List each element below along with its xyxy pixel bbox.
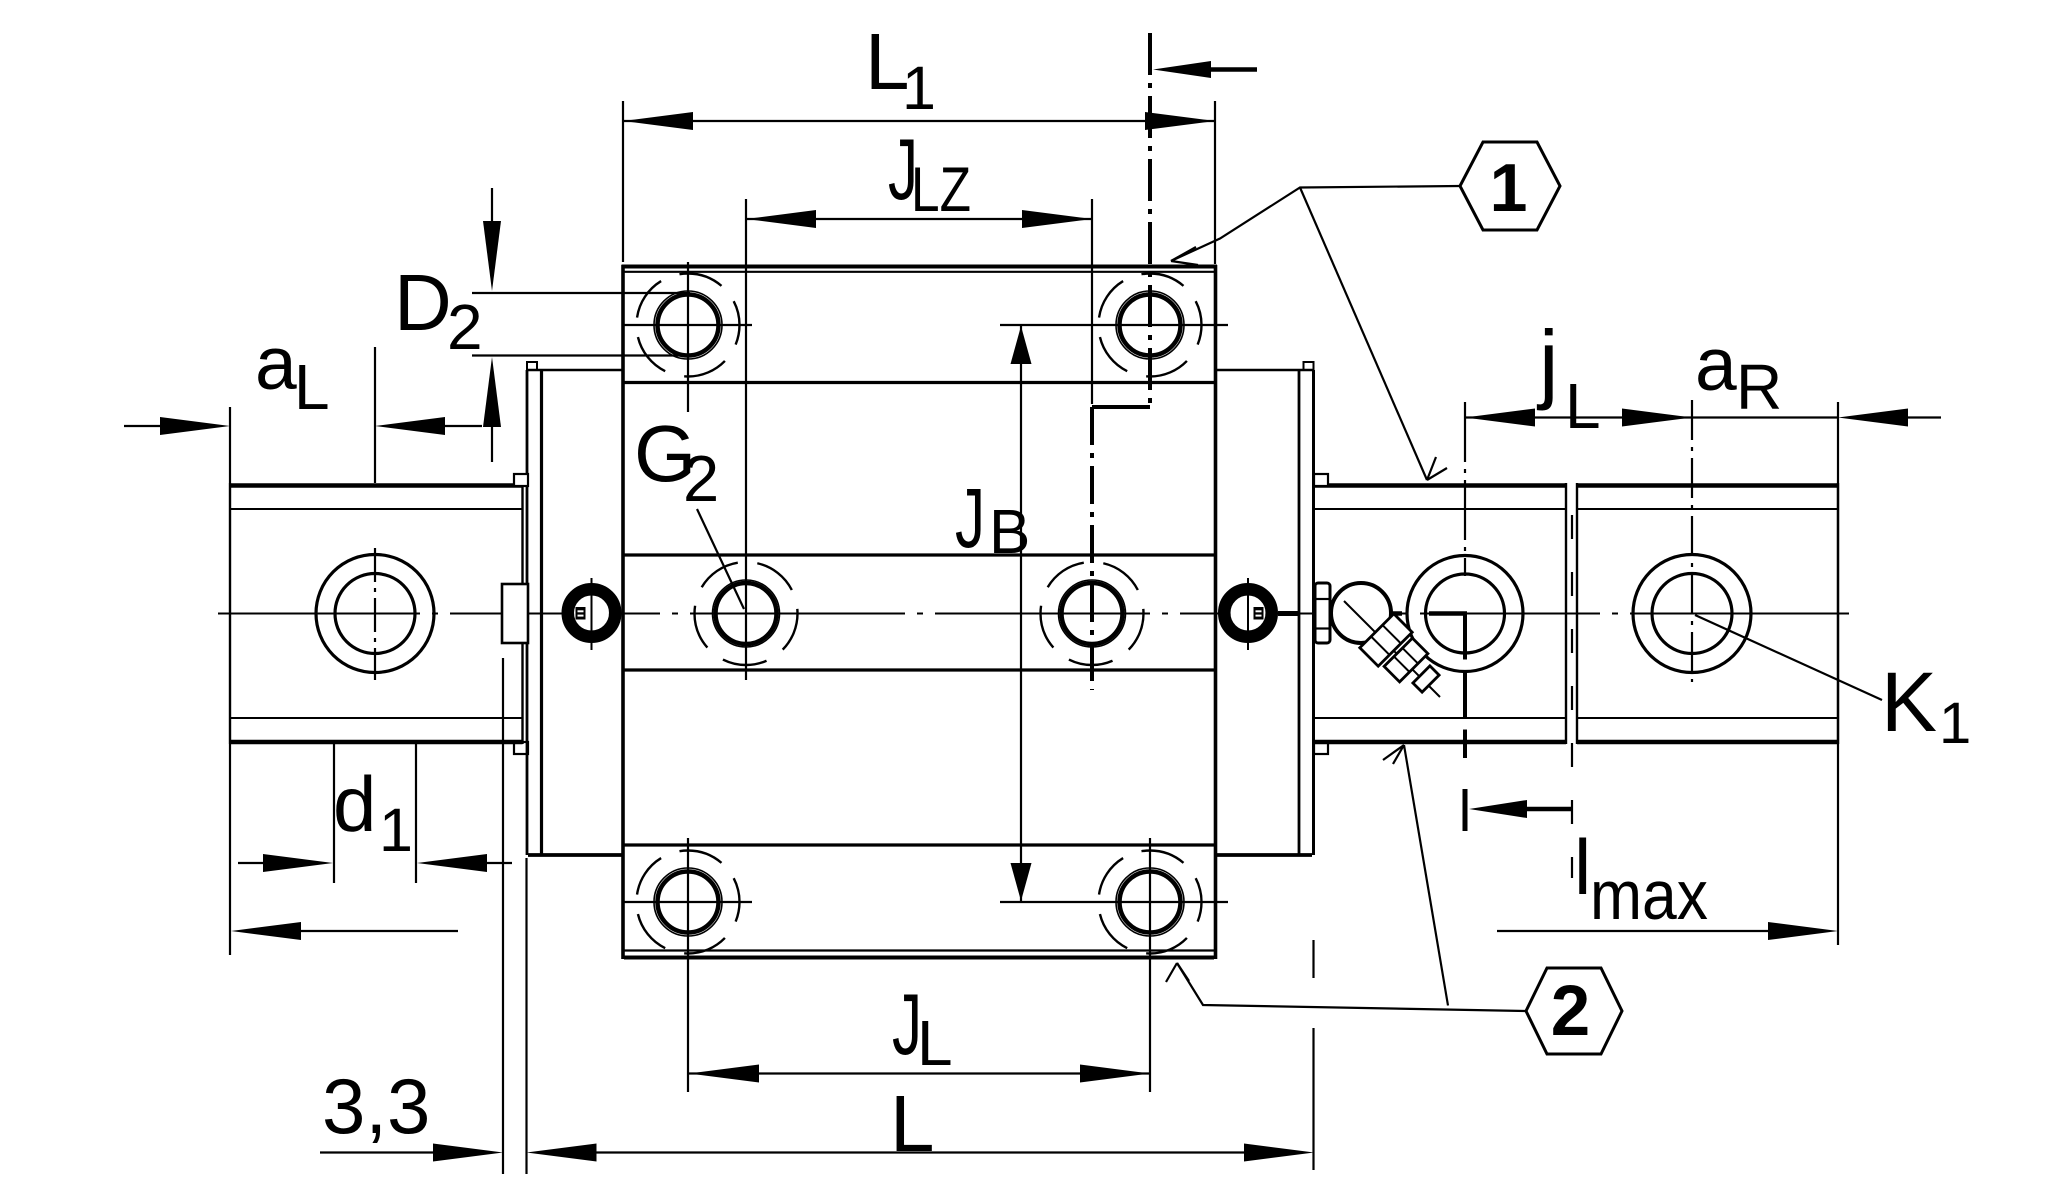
svg-text:1: 1 (1939, 691, 1971, 756)
svg-text:D: D (394, 258, 452, 347)
svg-text:J: J (955, 471, 985, 565)
svg-text:d: d (333, 760, 376, 848)
svg-text:R: R (1736, 351, 1782, 423)
svg-text:L: L (917, 1007, 953, 1079)
svg-text:3,3: 3,3 (322, 1062, 430, 1150)
svg-text:K: K (1881, 655, 1937, 749)
svg-text:1: 1 (902, 54, 936, 122)
svg-text:2: 2 (447, 291, 483, 363)
svg-text:j: j (1536, 312, 1559, 411)
svg-text:a: a (1695, 322, 1737, 406)
svg-text:2: 2 (1551, 972, 1591, 1051)
svg-text:2: 2 (683, 442, 719, 515)
svg-text:a: a (255, 321, 297, 405)
svg-text:L: L (294, 351, 330, 423)
svg-text:max: max (1590, 856, 1708, 934)
svg-text:1: 1 (379, 796, 413, 864)
svg-text:B: B (989, 498, 1030, 567)
svg-text:L: L (890, 1079, 935, 1168)
svg-text:l: l (1574, 823, 1591, 911)
svg-text:L: L (1565, 370, 1601, 442)
svg-text:1: 1 (1490, 150, 1528, 226)
svg-text:LZ: LZ (911, 155, 971, 225)
